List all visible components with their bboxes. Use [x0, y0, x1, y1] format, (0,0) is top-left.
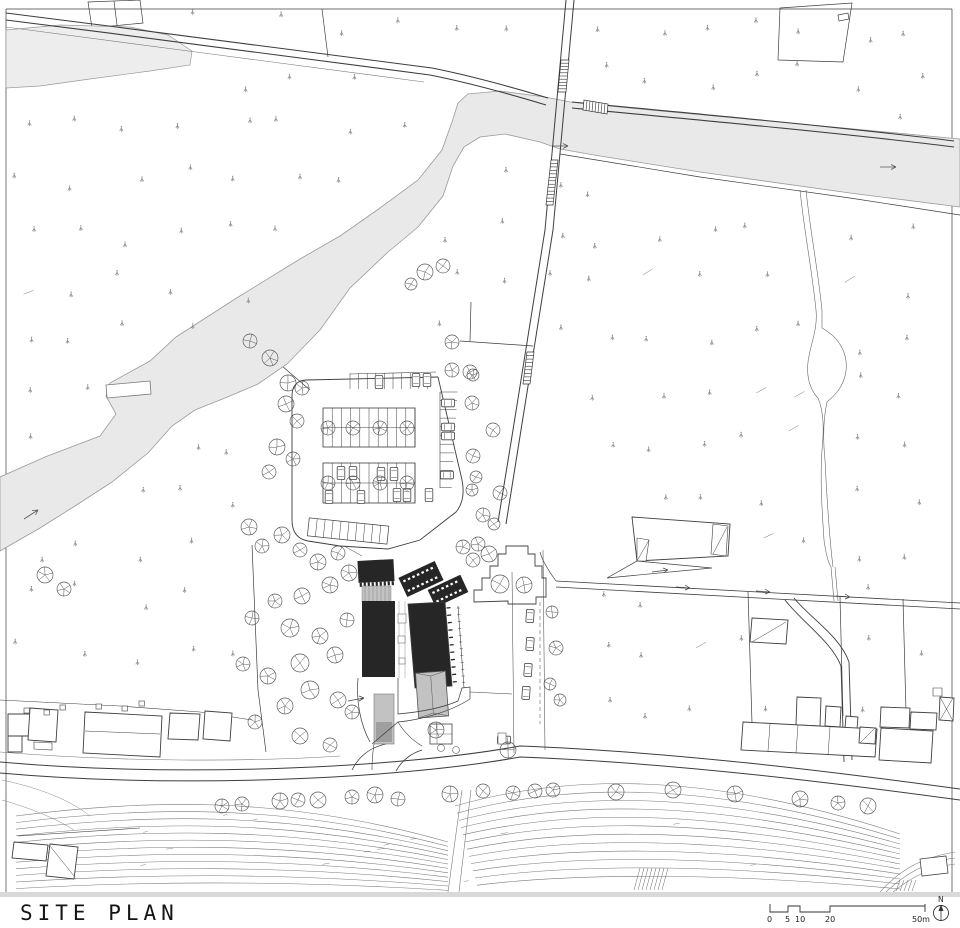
building-dark-1	[357, 559, 394, 587]
site-buildings-layer	[292, 372, 546, 770]
scale-label-5: 5	[785, 915, 790, 924]
scale-label-0: 0	[767, 915, 772, 924]
title-block: SITE PLAN	[20, 901, 179, 925]
scale-label-10: 10	[795, 915, 805, 924]
context-buildings-layer	[0, 517, 954, 879]
sheet-edge-strip	[0, 892, 960, 897]
site-plan-sheet: SITE PLAN 0 5 10 20 50m N	[0, 0, 960, 928]
main-road	[0, 757, 960, 800]
site-plan-drawing: SITE PLAN 0 5 10 20 50m N	[0, 0, 960, 928]
scale-label-50m: 50m	[912, 915, 930, 924]
building-dark-4	[362, 601, 395, 677]
north-label: N	[938, 895, 944, 904]
scale-bar-shape	[770, 904, 925, 912]
water-layer	[0, 25, 960, 551]
bridge-road	[498, 0, 566, 522]
drawing-title: SITE PLAN	[20, 901, 179, 925]
stepped-plaza	[474, 546, 546, 604]
north-arrow-icon: N	[934, 895, 949, 921]
scale-bar: 0 5 10 20 50m	[767, 904, 930, 924]
scale-label-20: 20	[825, 915, 835, 924]
contour-terraces-layer	[16, 784, 955, 892]
